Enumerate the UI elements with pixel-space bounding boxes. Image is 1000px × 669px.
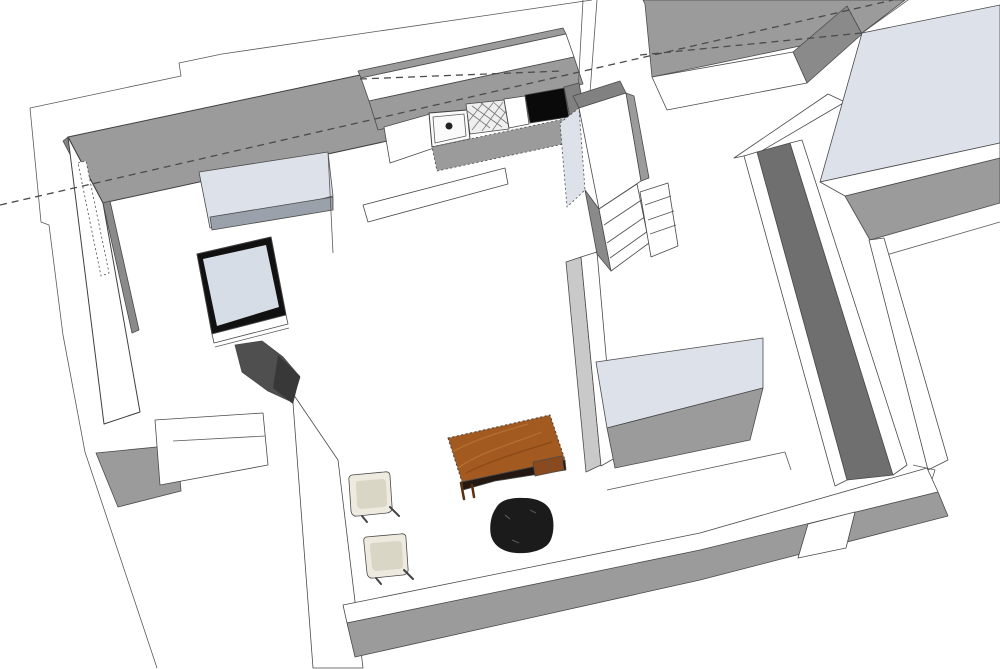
bathroom-counter: [155, 413, 268, 485]
tall-cabinet: [560, 81, 678, 271]
wooden-desk: [448, 415, 566, 499]
sink-drain: [446, 123, 453, 130]
tall-cabinet-side-panel: [560, 108, 585, 207]
bed: [596, 338, 763, 468]
dining-chair-2-leg-b: [376, 578, 381, 584]
model-viewport: [0, 0, 1000, 669]
dining-chair-2: [364, 534, 413, 584]
bottom-wall-top-band: [343, 468, 938, 623]
armchair: [235, 341, 300, 404]
dining-chair-1-leg-b: [362, 516, 367, 522]
office-chair: [490, 498, 553, 553]
dining-chair-1: [349, 472, 399, 522]
office-chair-body: [490, 498, 553, 553]
dining-chair-1-cushion: [356, 479, 387, 509]
bottom-wall-face: [347, 492, 948, 657]
dining-chair-1-leg-a: [390, 507, 399, 516]
base-cabinet-front: [363, 168, 508, 222]
bathroom-counter-top: [155, 413, 268, 485]
dining-chair-2-cushion: [370, 541, 403, 571]
tv-picture-frame: [197, 237, 289, 347]
